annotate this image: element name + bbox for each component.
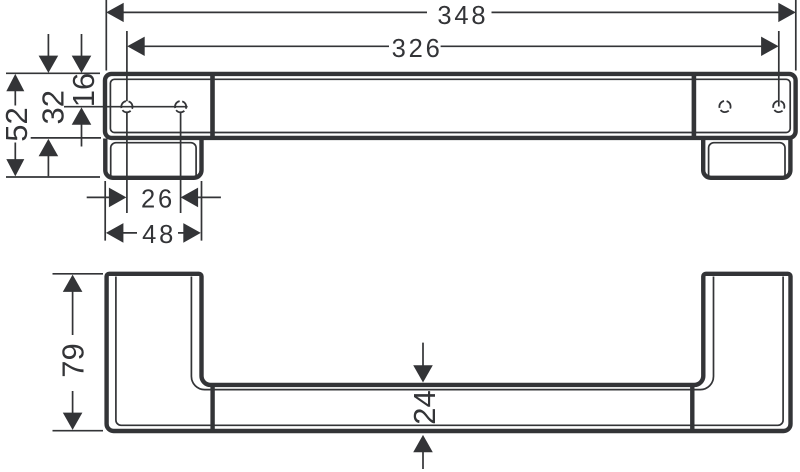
svg-text:24: 24 [407,390,442,424]
svg-text:79: 79 [56,343,91,377]
svg-text:52: 52 [0,107,34,141]
svg-text:326: 326 [392,35,443,63]
svg-text:16: 16 [66,73,101,107]
svg-text:48: 48 [142,221,176,249]
svg-text:348: 348 [437,2,488,30]
svg-text:26: 26 [141,185,175,213]
